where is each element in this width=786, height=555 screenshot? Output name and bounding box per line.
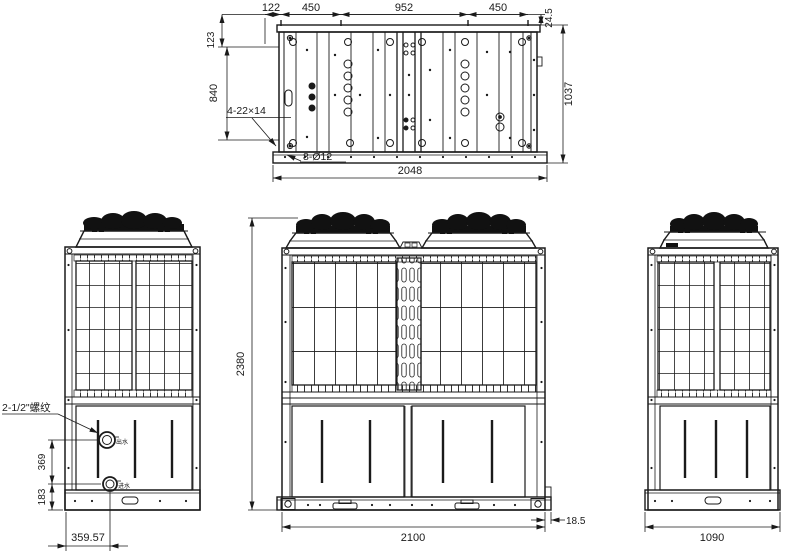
dim-840: 840 bbox=[208, 84, 220, 102]
callout-slots: 4-22×14 bbox=[227, 105, 266, 117]
drawing-svg: 122 450 952 450 24.5 123 840 1037 2048 4… bbox=[0, 0, 786, 555]
front-view bbox=[277, 212, 551, 510]
callout-holes: 8-Ø12 bbox=[303, 151, 332, 163]
dim-122: 122 bbox=[262, 2, 280, 14]
dim-2380: 2380 bbox=[235, 352, 247, 376]
side-view-dimensions bbox=[645, 512, 780, 532]
dim-359-57: 359.57 bbox=[71, 532, 105, 544]
access-door bbox=[660, 406, 770, 490]
base-rail bbox=[277, 497, 551, 510]
dim-450-left: 450 bbox=[302, 2, 320, 14]
base-rail bbox=[645, 490, 780, 510]
left-elevation-view bbox=[65, 211, 200, 510]
label-inlet: 进水 bbox=[118, 482, 130, 490]
dim-2048: 2048 bbox=[398, 165, 422, 177]
louver-column bbox=[397, 258, 421, 390]
dim-1090: 1090 bbox=[700, 532, 724, 544]
dim-24-5: 24.5 bbox=[544, 8, 555, 28]
callout-pipe: 2-1/2"螺纹 bbox=[2, 401, 51, 414]
dim-2100: 2100 bbox=[401, 532, 425, 544]
dim-450-right: 450 bbox=[489, 2, 507, 14]
access-door bbox=[76, 406, 192, 490]
technical-drawing: 122 450 952 450 24.5 123 840 1037 2048 4… bbox=[0, 0, 786, 555]
access-door bbox=[292, 406, 525, 497]
top-view bbox=[273, 20, 547, 163]
label-outlet: 出水 bbox=[116, 438, 128, 446]
dim-183: 183 bbox=[37, 488, 48, 505]
side-view bbox=[645, 212, 780, 510]
dim-1037: 1037 bbox=[563, 82, 575, 106]
dim-123: 123 bbox=[206, 31, 217, 48]
dim-369: 369 bbox=[37, 453, 48, 470]
base-rail bbox=[65, 490, 200, 510]
coil-grid bbox=[658, 262, 770, 390]
hole-circles bbox=[285, 35, 531, 148]
coil-grid bbox=[76, 261, 192, 390]
rivet-dots bbox=[284, 49, 536, 158]
dim-952: 952 bbox=[395, 2, 413, 14]
dim-18-5: 18.5 bbox=[566, 516, 586, 527]
